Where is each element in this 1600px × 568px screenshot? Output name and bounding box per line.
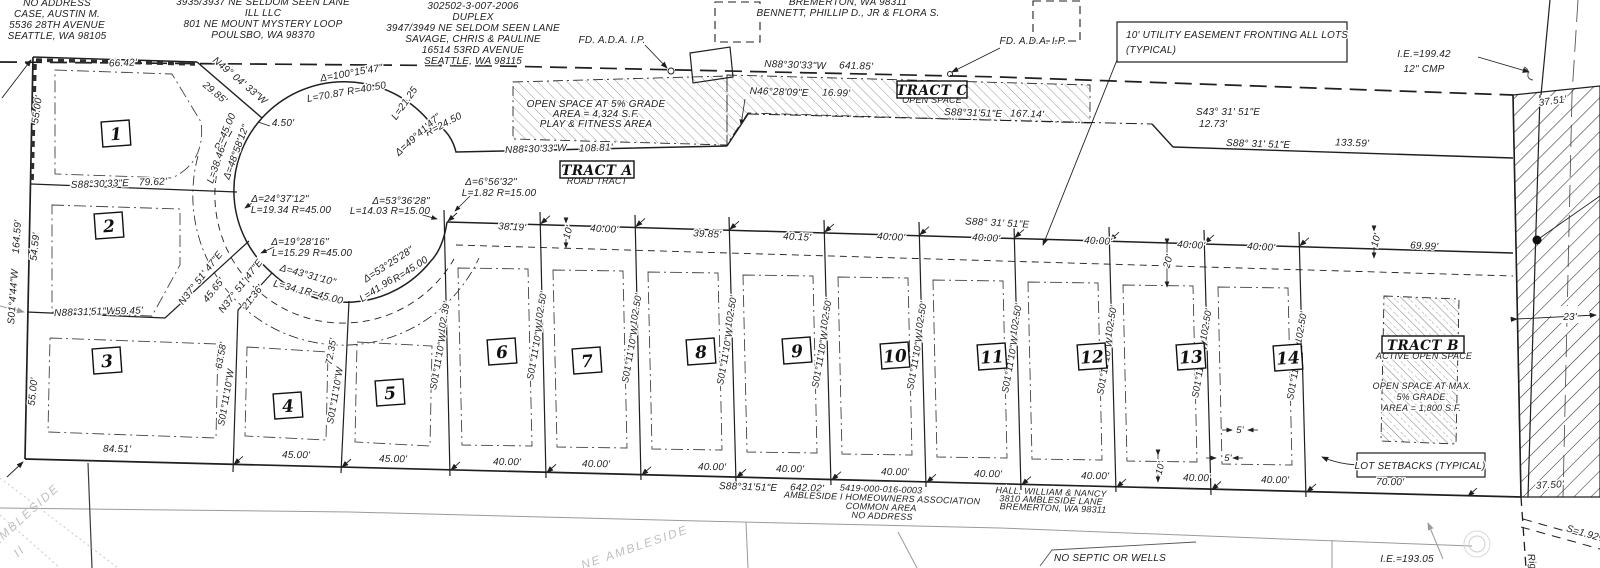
corner-leader-sw xyxy=(7,462,23,477)
annotation-label: 10' xyxy=(1370,231,1384,248)
tract-a-label: TRACT A xyxy=(560,161,634,179)
annotation-label: AMBLESIDE xyxy=(0,481,62,550)
dim-arrow xyxy=(730,221,739,229)
lot-10-number: 10 xyxy=(880,342,910,369)
hatch-areas xyxy=(513,75,1600,497)
annotation-label: S43° 31' 51"E xyxy=(1196,107,1260,118)
annotation-label: 10' UTILITY EASEMENT FRONTING ALL LOTS xyxy=(1126,30,1348,41)
annotation-label: FD. A.D.A. I.P. xyxy=(579,35,646,46)
annotation-label: 45.00' xyxy=(282,450,311,462)
lot-number: 9 xyxy=(790,342,803,363)
annotation-label: 40.00' xyxy=(1177,239,1207,252)
annotation-label: 39.85' xyxy=(693,228,723,241)
annotation-label: 59.45' xyxy=(115,305,144,317)
annotation-label: SEATTLE, WA 98115 xyxy=(424,56,522,67)
annotation-label: 40.15' xyxy=(783,231,813,244)
dim-arrow xyxy=(1212,481,1221,489)
annotation-label: 38.19' xyxy=(498,221,528,234)
annotation-label: 40.00' xyxy=(1081,471,1110,483)
annotation-label: 55.00' xyxy=(27,376,41,406)
annotation-label: 133.59' xyxy=(1335,137,1370,149)
dim-arrow xyxy=(737,469,746,477)
road-jog-s43 xyxy=(1152,124,1173,147)
annotation-label: 102.50' xyxy=(913,300,930,335)
annotation-label: 801 NE MOUNT MYSTERY LOOP xyxy=(184,19,343,30)
annotation-label: 12.73' xyxy=(1199,119,1228,130)
annotation-label: 5' xyxy=(1224,453,1232,464)
dim-arrow xyxy=(1205,235,1214,243)
dim-arrow xyxy=(1015,229,1024,237)
utility-easement-dashline xyxy=(456,245,1513,276)
annotation-label: 54.59' xyxy=(29,231,43,261)
annotation-label: POULSBO, WA 98370 xyxy=(211,30,315,41)
annotation-label: 40.00' xyxy=(974,469,1003,481)
annotation-label: 40.00' xyxy=(776,464,805,476)
lot-number: 1 xyxy=(109,125,122,146)
annotation-label: 40.00' xyxy=(877,231,907,244)
annotation-label: PLAY & FITNESS AREA xyxy=(540,119,653,130)
tract-c-label: TRACT C xyxy=(896,81,967,99)
lot-number: 13 xyxy=(1179,347,1204,369)
annotation-label: (TYPICAL) xyxy=(1126,45,1176,56)
annotation-label: 40.00' xyxy=(582,459,611,471)
lot-number: 5 xyxy=(383,384,396,405)
dim-arrow xyxy=(1117,479,1126,487)
lot-number: 12 xyxy=(1080,347,1105,369)
annotation-label: 102.50' xyxy=(818,297,835,332)
tract-name: TRACT C xyxy=(896,83,967,99)
annotation-label: 40.00' xyxy=(1261,475,1290,487)
parcel-line-below xyxy=(88,463,92,568)
annotation-label: 37.50' xyxy=(1536,479,1566,492)
ada-monument xyxy=(668,68,674,74)
ghost-manhole xyxy=(1469,536,1485,552)
tract-b-hatch xyxy=(1381,296,1459,444)
annotation-label: NO ADDRESS xyxy=(851,510,912,522)
annotation-label: II xyxy=(11,542,28,560)
lot-7-number: 7 xyxy=(572,347,602,374)
annotation-label: BREMERTON, WA 98311 xyxy=(789,0,907,8)
lot-6-number: 6 xyxy=(487,338,517,365)
annotation-label: S=1.92% xyxy=(1565,523,1600,545)
annotation-label: Rig xyxy=(1525,553,1539,568)
annotation-label: 66.42' xyxy=(109,57,138,69)
annotation-label: 40.00' xyxy=(698,462,727,474)
setback-lot13 xyxy=(1123,285,1197,462)
annotation-label: 102.50' xyxy=(1103,304,1120,339)
corner-leader-nw xyxy=(2,60,31,98)
driveway-line xyxy=(746,522,748,568)
annotation-label: N88°30'33"W xyxy=(764,59,827,72)
annotation-label: BENNETT, PHILLIP D., JR & FLORA S. xyxy=(757,8,940,19)
lot-1-number: 1 xyxy=(101,120,131,147)
lot-11-number: 11 xyxy=(977,343,1007,370)
annotation-label: 40.00' xyxy=(1183,473,1212,485)
tick-4-50 xyxy=(258,122,270,126)
annotation-label: L=14.03 R=15.00 xyxy=(350,206,431,217)
annotation-label: 102.39' xyxy=(436,300,453,335)
annotation-label: 3947/3949 NE SELDOM SEEN LANE xyxy=(386,23,560,34)
annotation-label: 102.50' xyxy=(533,290,550,325)
annotation-label: 167.14' xyxy=(1010,108,1045,120)
lot-setbacks-leader xyxy=(1322,457,1357,465)
ghost-manhole xyxy=(1464,531,1490,557)
dim-arrow xyxy=(920,227,929,235)
dim-arrow xyxy=(1022,477,1031,485)
dim-arrow xyxy=(1307,484,1316,492)
annotation-label: L=15.29 R=45.00 xyxy=(272,248,353,259)
annotation-label: N88°31'51"W xyxy=(54,306,117,319)
annotation-label: 40.00' xyxy=(1247,241,1277,254)
dim-arrow xyxy=(1300,238,1309,246)
annotation-label: I.E.=199.42 xyxy=(1397,49,1451,60)
annotation-label: 302502-3-007-2006 xyxy=(427,1,518,12)
lot-number: 4 xyxy=(281,397,294,418)
annotation-label: FD. A.D.A. I.P. xyxy=(1000,36,1067,47)
lot-number: 8 xyxy=(693,343,707,364)
dim-arrow xyxy=(1468,488,1477,496)
annotation-label: S01°11'10"W xyxy=(325,365,346,424)
annotation-label: 4.50' xyxy=(272,118,295,129)
annotation-label: 102.50' xyxy=(1008,302,1025,337)
lot-number: 10 xyxy=(883,346,908,368)
lot-2-number: 2 xyxy=(94,212,124,239)
annotation-label: SAVAGE, CHRIS & PAULINE xyxy=(405,34,541,45)
tract-name: TRACT B xyxy=(1387,338,1459,354)
annotation-label: 5536 28TH AVENUE xyxy=(9,20,105,31)
annotation-label: 70.00' xyxy=(1376,477,1405,489)
annotation-label: 102.50' xyxy=(628,292,645,327)
pavement-edge-north xyxy=(1541,0,1550,95)
annotation-label: L=70.87 R=40.50 xyxy=(306,80,387,105)
ie-199-leader xyxy=(1478,57,1529,72)
lot-number: 11 xyxy=(980,347,1005,369)
annotation-label: S88°31'51"E xyxy=(944,107,1003,120)
annotation-label: 10' xyxy=(1154,460,1168,476)
existing-building-dashed xyxy=(715,2,760,42)
annotation-label: 40.00' xyxy=(972,232,1002,245)
setback-lot14 xyxy=(1218,287,1292,465)
annotation-label: S88°30'33"E xyxy=(71,178,130,191)
lot-14-number: 14 xyxy=(1273,344,1303,371)
dim-arrow xyxy=(234,456,243,464)
lot-number: 2 xyxy=(101,217,115,238)
lot-line-1-2 xyxy=(31,184,237,192)
annotation-label: 63.58' xyxy=(214,340,230,369)
driveway-line xyxy=(898,532,917,568)
annotation-label: 5' xyxy=(1236,425,1244,436)
annotation-label: 72.35' xyxy=(324,336,340,365)
utility-easement-note-box xyxy=(1117,22,1347,62)
setback-lot12 xyxy=(1028,282,1102,460)
lot-12-number: 12 xyxy=(1077,343,1107,370)
annotation-label: 3935/3937 NE SELDOM SEEN LANE xyxy=(176,0,350,8)
lot-number: 14 xyxy=(1276,348,1301,370)
annotation-label: 12" CMP xyxy=(1403,64,1444,75)
dim-arrow xyxy=(927,474,936,482)
annotation-label: 641.85' xyxy=(839,60,874,72)
annotation-label: Δ=6°56'32" xyxy=(464,177,517,188)
annotation-label: DUPLEX xyxy=(452,12,493,23)
annotation-label: LOT SETBACKS (TYPICAL) xyxy=(1354,461,1485,472)
annotation-label: NO SEPTIC OR WELLS xyxy=(1054,553,1166,564)
dim-arrow xyxy=(451,462,460,470)
annotation-label: 20' xyxy=(1161,252,1176,270)
lot-8-number: 8 xyxy=(686,338,716,365)
annotation-label: 29.85' xyxy=(200,79,230,107)
lot-number: 7 xyxy=(580,352,593,373)
dim-arrow xyxy=(541,216,550,224)
annotation-label: 102.50' xyxy=(723,294,740,329)
lot-9-number: 9 xyxy=(782,337,812,364)
lot-number: 3 xyxy=(100,352,113,373)
annotation-label: 164.59' xyxy=(11,219,24,254)
annotation-label: 102.50' xyxy=(1198,307,1215,342)
annotation-label: N88°30'33"W xyxy=(505,143,568,156)
annotation-label: 40.00' xyxy=(590,223,620,236)
dim-arrow xyxy=(636,218,645,226)
annotation-label: L=19.34 R=45.00 xyxy=(251,205,332,216)
tract-name: TRACT A xyxy=(561,163,632,179)
plat-map-sheet: NO ADDRESSCASE, AUSTIN M.5536 28TH AVENU… xyxy=(0,0,1600,568)
annotation-label: 108.81' xyxy=(579,142,614,154)
annotation-label: Δ=24°37'12" xyxy=(250,194,309,205)
annotation-label: 79.62' xyxy=(139,176,168,188)
annotation-label: S01°4'44"W xyxy=(6,267,21,324)
annotation-label: 40.00' xyxy=(1084,235,1114,248)
annotation-label: SEATTLE, WA 98105 xyxy=(8,31,107,42)
tract-b-label: TRACT B xyxy=(1382,336,1464,354)
annotation-label: R=45.00 xyxy=(303,286,344,307)
annotation-label: ILL LLC xyxy=(245,8,282,19)
dim-arrow xyxy=(825,224,834,232)
annotation-label: N46°28'09"E xyxy=(749,86,808,99)
annotation-label: S01°11'10"W xyxy=(216,367,237,426)
annotation-label: NO ADDRESS xyxy=(23,0,91,9)
setback-lot9 xyxy=(743,275,817,453)
lot-numbers: 1234567891011121314 xyxy=(92,120,1303,419)
dim-arrow xyxy=(832,472,841,480)
annotation-label: 40.00' xyxy=(493,457,522,469)
lot-13-number: 13 xyxy=(1176,343,1206,370)
lot-number: 6 xyxy=(495,343,508,364)
annotation-label: NE AMBLESIDE xyxy=(579,522,690,568)
annotation-label: S88° 31' 51"E xyxy=(965,216,1030,230)
annotation-label: S88°31'51"E xyxy=(719,481,778,494)
road-edge-ambleside-lane xyxy=(0,508,1472,546)
existing-building-dashed xyxy=(1033,1,1080,41)
annotation-label: L=1.82 R=15.00 xyxy=(462,188,537,199)
annotation-label: S88° 31' 51"E xyxy=(1226,138,1291,151)
dim-arrow xyxy=(547,464,556,472)
plat-map-drawing: NO ADDRESSCASE, AUSTIN M.5536 28TH AVENU… xyxy=(0,0,1600,568)
lot-4-number: 4 xyxy=(273,392,303,419)
annotation-label: 16.99' xyxy=(822,88,851,100)
road-centerline-north xyxy=(1572,0,1578,95)
annotation-label: AREA = 1,800 S.F. xyxy=(1382,403,1461,413)
annotation-label: 45.00' xyxy=(379,454,408,466)
annotation-label: 16514 53RD AVENUE xyxy=(422,45,525,56)
lot-3-number: 3 xyxy=(92,347,122,374)
dim-arrow xyxy=(342,459,351,467)
annotation-label: I.E.=193.05 xyxy=(1380,554,1434,565)
annotation-label: 5% GRADE xyxy=(1396,392,1446,402)
annotation-label: 23' xyxy=(1562,312,1578,323)
culvert-symbol xyxy=(1524,67,1533,80)
annotation-label: L=21.25 xyxy=(390,85,421,122)
dim-arrow xyxy=(642,467,651,475)
setback-lot3 xyxy=(48,338,218,438)
annotation-label: 40.00' xyxy=(881,467,910,479)
annotation-label: OPEN SPACE AT MAX. xyxy=(1373,381,1472,391)
lot-5-number: 5 xyxy=(375,379,405,406)
annotation-label: CASE, AUSTIN M. xyxy=(14,9,100,20)
dim-arrow xyxy=(448,213,457,221)
row-strip-hatch xyxy=(1513,86,1600,497)
annotation-label: 102.50' xyxy=(1293,310,1310,345)
ada-leader-2 xyxy=(952,48,1000,72)
annotation-label: Δ=19°28'16" xyxy=(270,237,329,248)
ada-leader-1 xyxy=(645,45,667,68)
annotation-label: 84.51' xyxy=(103,444,132,456)
annotation-label: 69.99' xyxy=(1410,240,1440,253)
